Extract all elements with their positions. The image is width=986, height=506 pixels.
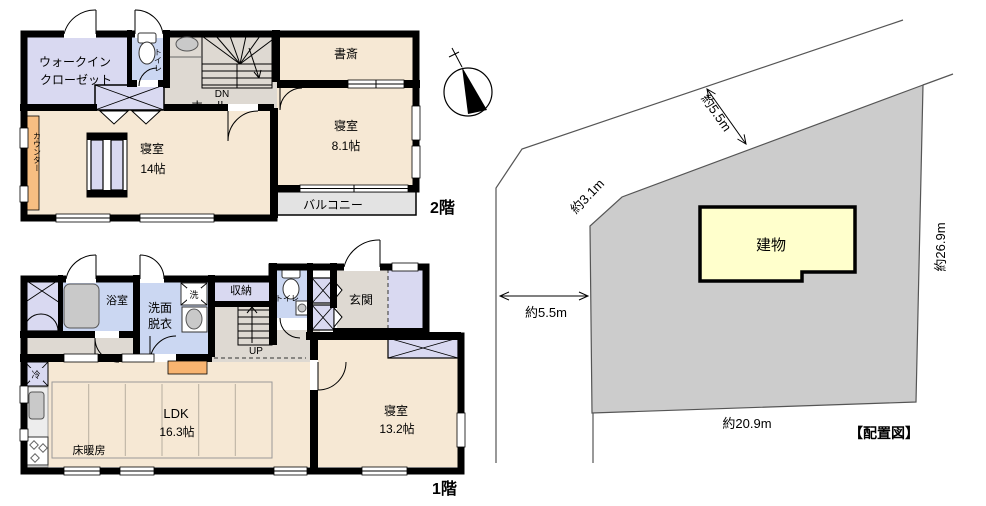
washroom-label-line2: 脱衣 (148, 316, 172, 331)
bedroom-partition (87, 133, 127, 197)
bedroom-8-name-label: 寝室 (334, 118, 358, 133)
washroom-label-line1: 洗面 (148, 301, 172, 315)
bathtub-icon (64, 284, 99, 328)
site-plan-caption: 【配置図】 (849, 425, 919, 441)
hall-step (168, 361, 207, 374)
dim-road-left: 約5.5m (500, 292, 588, 320)
bedroom-13-name-label: 寝室 (384, 403, 408, 418)
bedroom-8-size-label: 8.1帖 (332, 138, 361, 153)
ldk-name-label: LDK (163, 406, 189, 421)
counter-label: カウンター (33, 132, 42, 172)
building-label: 建物 (756, 237, 786, 254)
toilet-label-2f: トイレ (154, 48, 163, 72)
toilet-label-1f: トイレ (275, 294, 299, 303)
second-floor-plan: ウォークイン クローゼット トイレ DN ホール 書斎 寝室 8.1帖 バルコニ… (20, 10, 455, 222)
ldk-size-label: 16.3帖 (159, 424, 194, 439)
closet-1f-left (24, 279, 60, 331)
study-label: 書斎 (334, 46, 358, 61)
dim-south-label: 約20.9m (722, 416, 771, 431)
dim-road-top-label: 約5.5m (698, 91, 734, 134)
bedroom-14-name-label: 寝室 (140, 141, 164, 156)
shoe-closet (388, 269, 424, 330)
dim-east-label: 約26.9m (933, 222, 948, 271)
bedroom-closet-1f (388, 338, 458, 358)
bedroom-14-size-label: 14帖 (140, 161, 165, 176)
first-floor-title: 1階 (432, 480, 457, 498)
floor-heating-label: 床暖房 (73, 443, 106, 457)
balcony-label: バルコニー (303, 198, 363, 212)
storage-label: 収納 (230, 284, 252, 297)
stove-icon (26, 437, 48, 465)
washbasin-icon-1f (182, 307, 207, 332)
stairs-up-label: UP (249, 346, 263, 357)
site-plan: 建物 約5.5m 約3.1m 約5.5m 約26.9m 約20.9m 【配置図】 (444, 20, 953, 463)
walk-in-closet-label-line2: クローゼット (40, 73, 112, 87)
dim-road-left-label: 約5.5m (525, 305, 567, 320)
second-floor-title: 2階 (430, 199, 455, 217)
floorplan-drawing: ウォークイン クローゼット トイレ DN ホール 書斎 寝室 8.1帖 バルコニ… (0, 0, 986, 506)
hall-label: ホール (191, 99, 227, 113)
bathroom-label: 浴室 (106, 293, 128, 307)
boundary-extension-line (923, 74, 953, 85)
kitchen-counter (25, 387, 48, 467)
washer-label: 洗 (189, 289, 198, 300)
refrigerator-label: 冷 (31, 369, 40, 380)
bedroom-13-size-label: 13.2帖 (379, 421, 414, 436)
entrance-label: 玄関 (349, 292, 373, 307)
floorplan-page: ウォークイン クローゼット トイレ DN ホール 書斎 寝室 8.1帖 バルコニ… (0, 0, 986, 506)
sink-icon (29, 392, 44, 419)
compass-north-icon (444, 48, 492, 116)
first-floor-plan: 浴室 洗面 脱衣 洗 収納 トイレ 玄関 UP 冷 LDK 16.3帖 床暖房 … (20, 240, 465, 498)
walk-in-closet-label-line1: ウォークイン (39, 55, 111, 69)
dim-corner-label: 約3.1m (567, 176, 607, 217)
dim-road-top: 約5.5m (698, 89, 746, 144)
